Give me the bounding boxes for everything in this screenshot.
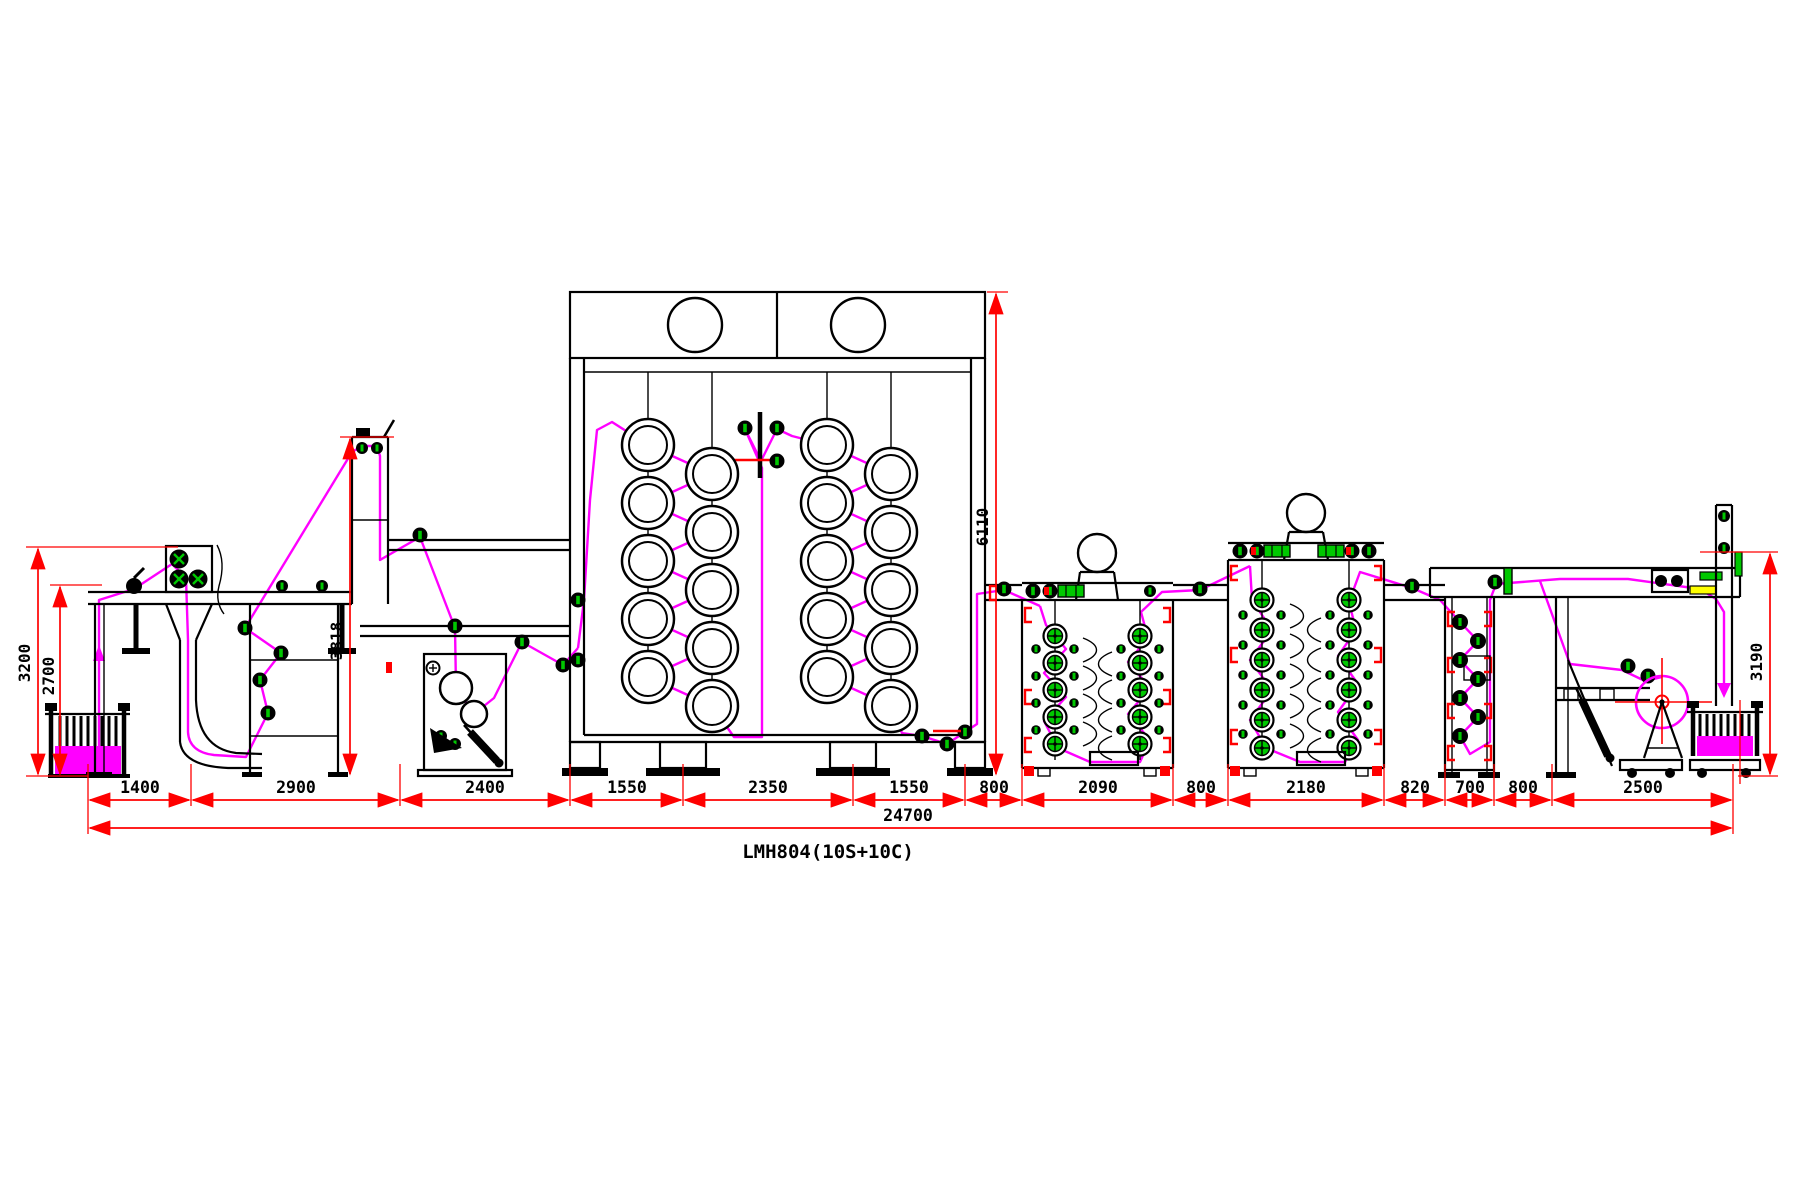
dim-label: 2900 [276, 778, 316, 797]
roll-trolley [1620, 760, 1682, 770]
steam-rollers [1031, 625, 1164, 756]
fabric-in-basket [1697, 736, 1753, 756]
deflector-plates [1083, 638, 1112, 760]
dim-label: 2500 [1623, 778, 1663, 797]
drive-roll [1058, 585, 1084, 597]
dim-label: 2400 [465, 778, 505, 797]
transfer-pulley-icon [997, 582, 1012, 597]
beam-pulley-icon [556, 658, 571, 673]
dim-label: 2180 [1286, 778, 1326, 797]
exhaust-fan [1078, 534, 1116, 572]
total-dim-label: 24700 [883, 806, 933, 825]
pneumatic-cylinder [1582, 700, 1608, 756]
unwind-frame [86, 545, 356, 777]
pneumatic-cylinder [470, 732, 497, 761]
coating-unit [418, 654, 512, 776]
deflector-plates [1290, 604, 1321, 762]
tower-pulley-icon [1718, 510, 1730, 522]
dim-label: 2090 [1078, 778, 1118, 797]
beam-pulley-icon [413, 528, 428, 543]
dim-label-vertical: 3200 [15, 644, 34, 683]
center-pulley-icon [770, 421, 785, 436]
dim-label: 2350 [748, 778, 788, 797]
dim-label-vertical: 2700 [39, 657, 58, 696]
edge-sensor [1504, 568, 1512, 594]
right-basket [1687, 701, 1763, 756]
red-sensor [386, 662, 392, 673]
coating-roller [440, 672, 472, 704]
tower-pulley-icon [356, 442, 368, 454]
outlet-pulley-icon [940, 737, 955, 752]
dim-label: 700 [1455, 778, 1485, 797]
transfer-pulley-icon [1193, 582, 1208, 597]
machine-line-drawing: 1400 2900 2400 1550 2350 1550 800 2090 8… [0, 0, 1800, 1200]
beam-pulley-icon [448, 619, 463, 634]
web-arrow-down [1717, 683, 1731, 698]
dim-label: 800 [979, 778, 1009, 797]
guide-roller-icon [170, 570, 189, 589]
dim-label-vertical: 6110 [973, 508, 992, 547]
web-pulley-icon [316, 580, 328, 592]
beam-pulley-icon [515, 635, 530, 650]
web-pulley-icon [274, 646, 289, 661]
feed-tower [352, 420, 394, 604]
web-pulley-icon [238, 621, 253, 636]
guide-roller-icon [170, 550, 189, 569]
dim-label: 1550 [607, 778, 647, 797]
web-pulley-icon [253, 673, 268, 688]
wall-pulley-icon [571, 593, 586, 608]
steam-box-2 [1228, 494, 1384, 776]
winder-pulley-icon [1621, 659, 1636, 674]
dim-label: 1400 [120, 778, 160, 797]
yellow-guide [1690, 586, 1716, 594]
dim-label-vertical: 3818 [327, 622, 346, 661]
beam-pulley-icon [1488, 575, 1503, 590]
drying-oven [562, 292, 993, 776]
dim-label-vertical: 3190 [1747, 643, 1766, 682]
web-pulley-icon [276, 580, 288, 592]
drive-roll [1264, 545, 1290, 557]
coating-roller [461, 701, 487, 727]
dim-label: 1550 [889, 778, 929, 797]
dim-label: 800 [1508, 778, 1538, 797]
dim-label: 800 [1186, 778, 1216, 797]
cad-drawing-page: 1400 2900 2400 1550 2350 1550 800 2090 8… [0, 0, 1800, 1200]
steam-box-1 [1022, 534, 1173, 776]
wall-pulley-icon [571, 653, 586, 668]
compensator-rollers [1452, 614, 1486, 744]
center-pulley-icon [770, 454, 785, 469]
tower-pulley-icon [371, 442, 383, 454]
tension-roller [126, 578, 142, 594]
center-pulley-icon [738, 421, 753, 436]
web-pulley-icon [261, 706, 276, 721]
guide-roller-icon [189, 570, 208, 589]
circulation-fan [668, 298, 722, 352]
exhaust-fan [1287, 494, 1325, 532]
drawing-title: LMH804(10S+10C) [742, 841, 914, 863]
circulation-fan [831, 298, 885, 352]
outlet-pulley-icon [915, 729, 930, 744]
transfer-pulley-icon [1405, 579, 1420, 594]
drive-roll [1318, 545, 1344, 557]
dim-label: 820 [1400, 778, 1430, 797]
